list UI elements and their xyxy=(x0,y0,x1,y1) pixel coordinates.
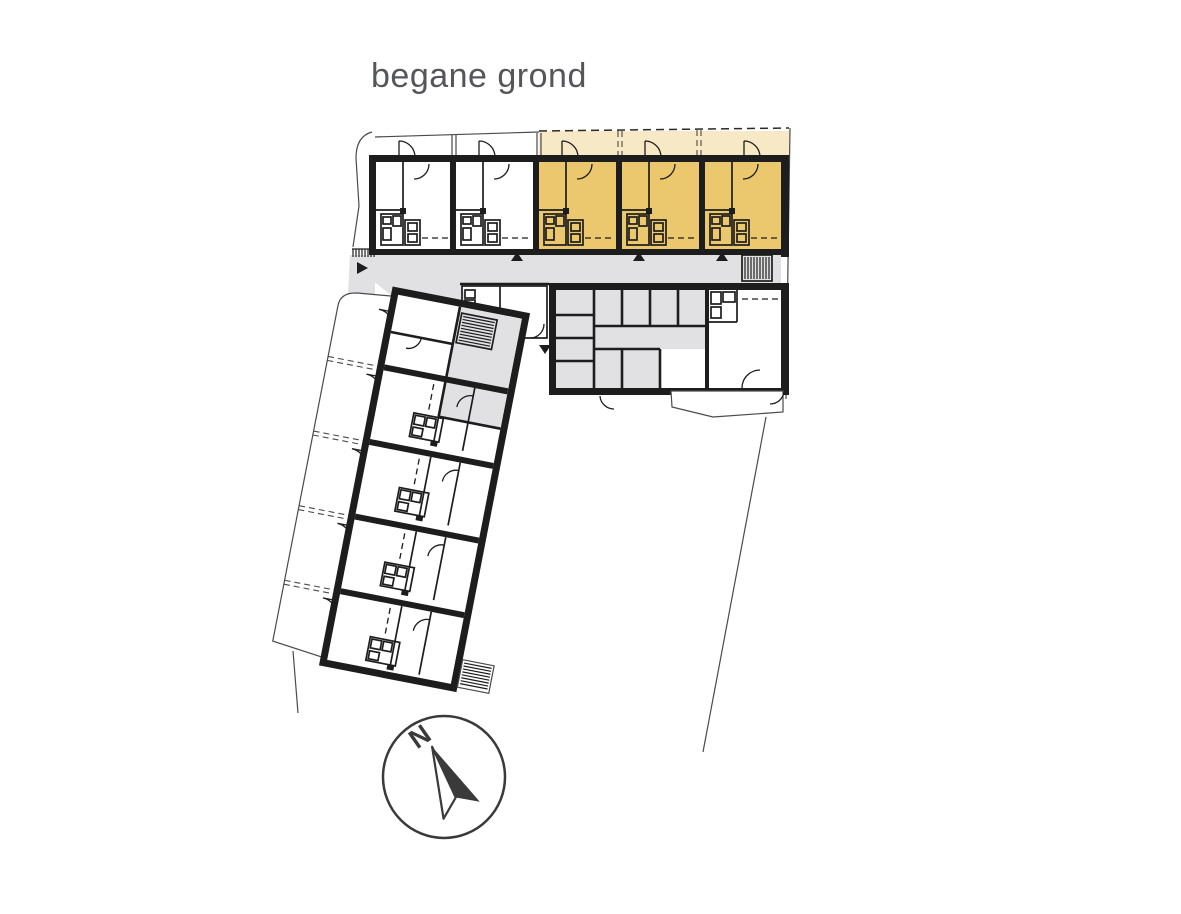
unit-highlighted-1[interactable] xyxy=(539,162,616,249)
floorplan-drawing: N xyxy=(0,0,1181,914)
room-south xyxy=(660,349,705,388)
unit-highlighted-2[interactable] xyxy=(622,162,699,249)
floorplan-page: begane grond xyxy=(0,0,1181,914)
unit-2 xyxy=(456,162,533,249)
top-wing xyxy=(369,155,789,257)
highlighted-terrace-band xyxy=(539,131,789,157)
unit-1 xyxy=(376,162,450,249)
stairs-wing-south xyxy=(457,660,494,694)
south-terrace xyxy=(671,391,784,417)
unit-highlighted-3[interactable] xyxy=(705,162,781,249)
compass: N xyxy=(383,716,505,838)
top-terraces xyxy=(399,128,789,157)
diagonal-wing xyxy=(270,277,562,698)
storage-block xyxy=(549,283,789,409)
